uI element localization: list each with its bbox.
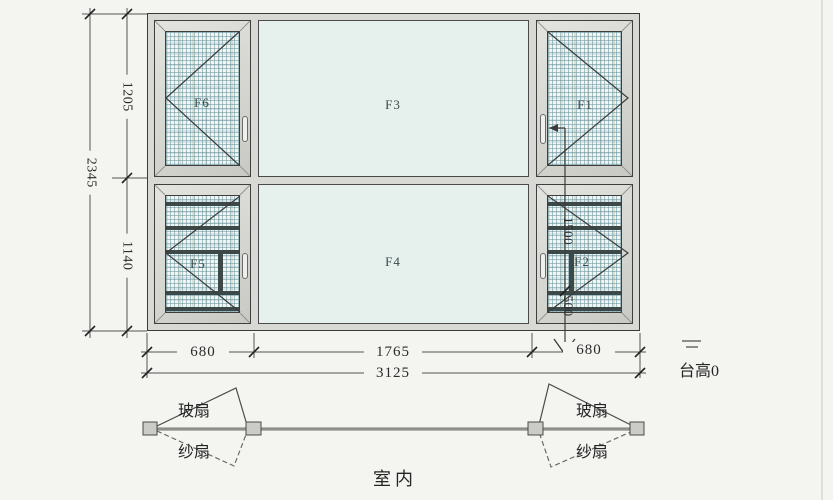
label-screen-sash-right: 纱扇	[565, 438, 619, 462]
panel-f5-screen-mesh	[165, 195, 240, 313]
label-screen-sash-left: 纱扇	[167, 438, 221, 462]
grille-bar	[548, 202, 621, 206]
dim-center-width: 1765	[364, 344, 422, 361]
label-panel-f5: F5	[180, 256, 216, 272]
label-panel-f4: F4	[375, 254, 411, 270]
plan-mullion-block	[246, 422, 261, 435]
plan-frame-block	[630, 422, 644, 435]
dim-inner-upper: 1500	[561, 211, 575, 251]
label-indoor: 室内	[360, 465, 430, 491]
label-panel-f3: F3	[375, 97, 411, 113]
grille-bar	[166, 226, 239, 230]
grille-bar	[548, 291, 621, 295]
dim-right-width: 680	[563, 342, 615, 359]
label-panel-f1: F1	[567, 97, 603, 113]
grille-bar	[166, 291, 239, 295]
label-glass-sash-right: 玻扇	[565, 397, 619, 421]
grille-bar	[166, 250, 239, 254]
handle-f1	[540, 114, 546, 144]
grille-bar	[548, 307, 621, 311]
window-elevation-drawing: F6 F5 F3 F4 F1 F2 1205 2345 1140 1500 50…	[0, 0, 833, 500]
plan-mullion-block	[528, 422, 543, 435]
handle-f2	[540, 253, 546, 279]
ground-level-symbol	[682, 341, 701, 347]
dim-inner-lower: 500	[561, 289, 575, 323]
grille-bar	[166, 202, 239, 206]
label-panel-f2: F2	[564, 254, 600, 270]
dim-total-height: 2345	[83, 151, 98, 195]
label-panel-f6: F6	[184, 95, 220, 111]
handle-f6	[242, 116, 248, 142]
label-sill-height: 台高0	[664, 357, 734, 381]
grille-bar-vertical	[218, 252, 223, 295]
grille-bar	[166, 307, 239, 311]
dim-left-width: 680	[177, 344, 229, 361]
dim-upper-height: 1205	[119, 75, 134, 119]
handle-f5	[242, 253, 248, 279]
label-glass-sash-left: 玻扇	[167, 397, 221, 421]
grille-bar	[548, 226, 621, 230]
dim-total-width: 3125	[364, 365, 422, 382]
dim-lower-height: 1140	[119, 234, 134, 278]
plan-frame-block	[143, 422, 157, 435]
image-edge-line	[821, 0, 823, 500]
